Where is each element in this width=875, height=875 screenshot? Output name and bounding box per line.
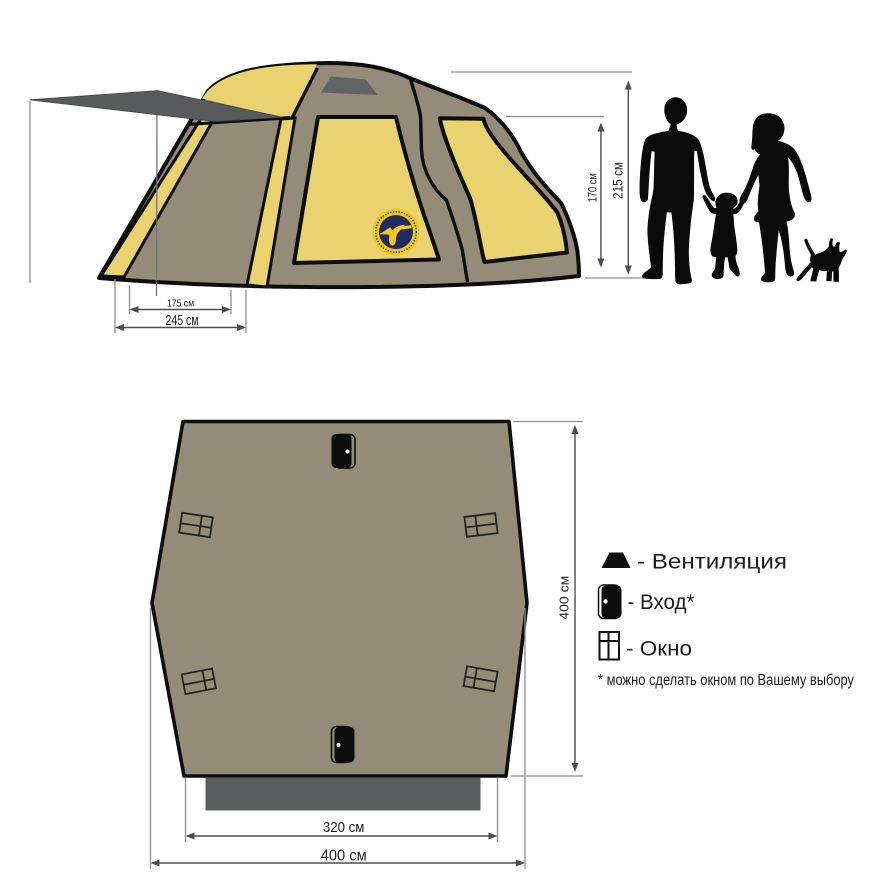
svg-text:245 см: 245 см — [166, 313, 199, 329]
svg-text:* можно сделать окном по Вашем: * можно сделать окном по Вашему выбору — [598, 672, 854, 689]
svg-text:400 см: 400 см — [321, 848, 367, 865]
svg-text:175 см: 175 см — [167, 299, 194, 310]
svg-text:215 см: 215 см — [610, 162, 626, 199]
svg-text:400 см: 400 см — [557, 576, 572, 620]
svg-text:- Вентиляция: - Вентиляция — [637, 550, 787, 574]
svg-text:- Вход*: - Вход* — [628, 590, 696, 614]
svg-text:320 см: 320 см — [323, 820, 365, 836]
svg-text:- Окно: - Окно — [626, 637, 692, 661]
svg-text:170 см: 170 см — [587, 173, 599, 202]
